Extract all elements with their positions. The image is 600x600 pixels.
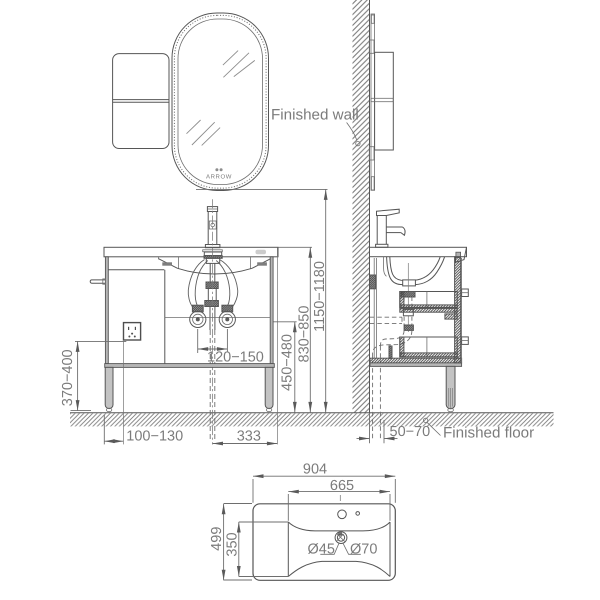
svg-text:499: 499 [209, 527, 225, 551]
svg-text:350: 350 [224, 532, 240, 556]
svg-text:1150−1180: 1150−1180 [312, 261, 328, 332]
svg-text:665: 665 [330, 478, 354, 494]
svg-text:904: 904 [303, 461, 327, 477]
svg-text:100−130: 100−130 [126, 428, 183, 444]
svg-text:120−150: 120−150 [207, 350, 264, 366]
svg-text:333: 333 [237, 428, 261, 444]
svg-text:Ø70: Ø70 [350, 541, 377, 557]
svg-text:830−850: 830−850 [297, 306, 313, 363]
svg-text:ARROW: ARROW [206, 174, 232, 181]
svg-text:Finished floor: Finished floor [443, 424, 534, 441]
svg-text:Ø45: Ø45 [308, 541, 335, 557]
svg-text:370−400: 370−400 [60, 349, 76, 406]
svg-text:Finished wall: Finished wall [271, 107, 359, 124]
svg-text:50−70: 50−70 [390, 424, 431, 440]
svg-text:450−480: 450−480 [279, 334, 295, 391]
